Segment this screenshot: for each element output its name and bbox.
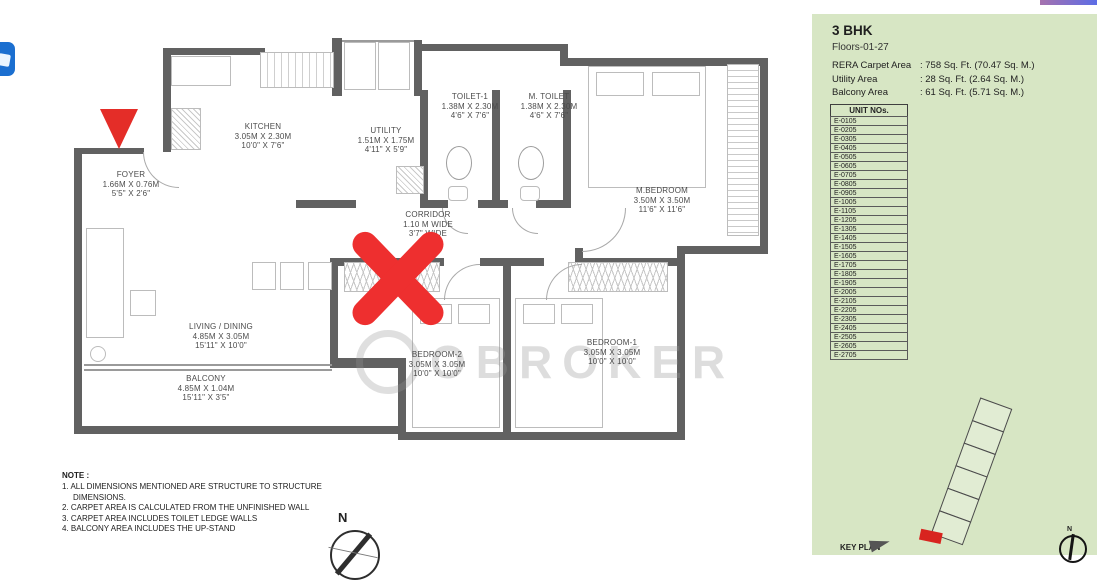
wall-line xyxy=(84,364,332,366)
shaft-outline xyxy=(378,42,410,90)
element: 3.05M X 2.30M xyxy=(235,132,292,142)
blue-app-icon[interactable] xyxy=(0,42,15,76)
element: 4.85M X 1.04M xyxy=(178,384,235,394)
element: 4'6" X 7'6" xyxy=(521,111,578,121)
element: 15'11" X 3'5" xyxy=(178,393,235,403)
element: BEDROOM-2 xyxy=(409,350,466,360)
pillow-outline xyxy=(652,72,700,96)
plant-outline xyxy=(90,346,106,362)
room-label-kitchen: KITCHEN3.05M X 2.30M10'0" X 7'6" xyxy=(235,122,292,151)
area-row: Utility Area : 28 Sq. Ft. (2.64 Sq. M.) xyxy=(832,73,1035,87)
wall-segment xyxy=(478,200,508,208)
unit-table: UNIT NOs. E-0105E-0205E-0305E-0405E-0505… xyxy=(830,104,908,360)
element: BEDROOM-1 xyxy=(584,338,641,348)
notes: NOTE : 1. ALL DIMENSIONS MENTIONED ARE S… xyxy=(62,471,342,534)
wall-segment xyxy=(760,58,768,254)
area-value: : 758 Sq. Ft. (70.47 Sq. M.) xyxy=(920,59,1035,73)
element: 1.66M X 0.76M xyxy=(103,180,160,190)
element: 3.05M X 3.05M xyxy=(584,348,641,358)
wall-segment xyxy=(420,200,448,208)
unit-type-title: 3 BHK xyxy=(832,23,873,38)
room-label-living-dining: LIVING / DINING4.85M X 3.05M15'11" X 10'… xyxy=(189,322,253,351)
notes-heading: NOTE : xyxy=(62,471,342,481)
element: CORRIDOR xyxy=(403,210,453,220)
dining-chair xyxy=(280,262,304,290)
element: 10'0" X 7'6" xyxy=(235,141,292,151)
unit-number-cell: E-2705 xyxy=(830,350,908,360)
wall-segment xyxy=(536,200,571,208)
north-label: N xyxy=(338,510,347,525)
room-label-utility: UTILITY1.51M X 1.75M4'11" X 5'9" xyxy=(358,126,415,155)
area-label: Balcony Area xyxy=(832,86,920,100)
element: 1.38M X 2.30M xyxy=(442,102,499,112)
coffee-table xyxy=(130,290,156,316)
note-item: 2. CARPET AREA IS CALCULATED FROM THE UN… xyxy=(62,503,342,513)
watermark-text: OBROKER xyxy=(430,335,735,389)
floors-label: Floors-01-27 xyxy=(832,42,889,53)
panel-north-compass: N xyxy=(1057,526,1087,566)
unit-table-body: E-0105E-0205E-0305E-0405E-0505E-0605E-07… xyxy=(830,116,908,360)
room-label-foyer: FOYER1.66M X 0.76M5'5" X 2'6" xyxy=(103,170,160,199)
room-label-mbedroom: M.BEDROOM3.50M X 3.50M11'6" X 11'6" xyxy=(634,186,691,215)
toilet-fixture xyxy=(518,146,544,180)
wall-segment xyxy=(422,44,568,51)
red-triangle-marker xyxy=(100,109,138,149)
area-row: RERA Carpet Area : 758 Sq. Ft. (70.47 Sq… xyxy=(832,59,1035,73)
wall-segment xyxy=(480,258,544,266)
element: 4'11" X 5'9" xyxy=(358,145,415,155)
door-swing-arc xyxy=(546,264,582,300)
element: 10'0" X 10'0" xyxy=(409,369,466,379)
note-item: 1. ALL DIMENSIONS MENTIONED ARE STRUCTUR… xyxy=(62,482,342,503)
element: TOILET-1 xyxy=(442,92,499,102)
room-label-mtoilet: M. TOILET1.38M X 2.30M4'6" X 7'6" xyxy=(521,92,578,121)
element: 4'6" X 7'6" xyxy=(442,111,499,121)
element: BALCONY xyxy=(178,374,235,384)
pillow-outline xyxy=(596,72,644,96)
element: 10'0" X 10'0" xyxy=(584,357,641,367)
door-swing-arc xyxy=(582,208,626,252)
north-compass: N xyxy=(316,510,386,570)
element: FOYER xyxy=(103,170,160,180)
kitchen-counter xyxy=(171,56,231,86)
shaft-outline xyxy=(344,42,376,90)
washbasin xyxy=(520,186,540,201)
closet-outline xyxy=(260,52,334,88)
sofa-outline xyxy=(86,228,124,338)
wall-segment xyxy=(163,48,265,55)
kitchen-platform xyxy=(171,108,201,150)
area-value: : 28 Sq. Ft. (2.64 Sq. M.) xyxy=(920,73,1024,87)
element: M. TOILET xyxy=(521,92,578,102)
wall-segment xyxy=(677,246,768,254)
wall-segment xyxy=(296,200,356,208)
north-label: N xyxy=(1067,526,1072,533)
door-swing-arc xyxy=(512,208,538,234)
room-label-bedroom2: BEDROOM-23.05M X 3.05M10'0" X 10'0" xyxy=(409,350,466,379)
dining-chair xyxy=(252,262,276,290)
area-row: Balcony Area : 61 Sq. Ft. (5.71 Sq. M.) xyxy=(832,86,1035,100)
element: UTILITY xyxy=(358,126,415,136)
wall-segment xyxy=(414,40,422,96)
wall-segment xyxy=(398,432,685,440)
wall-line xyxy=(84,369,332,371)
wall-segment xyxy=(74,426,406,434)
element: 15'11" X 10'0" xyxy=(189,341,253,351)
dining-chair xyxy=(308,262,332,290)
element: 1.38M X 2.30M xyxy=(521,102,578,112)
red-cross-mark xyxy=(342,226,454,330)
pillow-outline xyxy=(561,304,593,324)
wall-segment xyxy=(163,48,171,152)
element: 3.05M X 3.05M xyxy=(409,360,466,370)
room-label-balcony: BALCONY4.85M X 1.04M15'11" X 3'5" xyxy=(178,374,235,403)
pillow-outline xyxy=(458,304,490,324)
element: LIVING / DINING xyxy=(189,322,253,332)
page: { "colors": { "panel_green": "#d7e6c4", … xyxy=(0,0,1097,555)
note-item: 3. CARPET AREA INCLUDES TOILET LEDGE WAL… xyxy=(62,514,342,524)
area-label: Utility Area xyxy=(832,73,920,87)
key-plan-building xyxy=(928,398,1012,552)
top-gradient-strip xyxy=(1040,0,1097,5)
room-label-bedroom1: BEDROOM-13.05M X 3.05M10'0" X 10'0" xyxy=(584,338,641,367)
wardrobe-hatch xyxy=(727,64,759,236)
washbasin xyxy=(448,186,468,201)
note-item: 4. BALCONY AREA INCLUDES THE UP-STAND xyxy=(62,524,342,534)
element: 1.51M X 1.75M xyxy=(358,136,415,146)
element: 4.85M X 3.05M xyxy=(189,332,253,342)
element: 11'6" X 11'6" xyxy=(634,205,691,215)
element: 5'5" X 2'6" xyxy=(103,189,160,199)
area-value: : 61 Sq. Ft. (5.71 Sq. M.) xyxy=(920,86,1024,100)
app-icon-glyph xyxy=(0,53,11,67)
element: 3.50M X 3.50M xyxy=(634,196,691,206)
floor-plan: OBROKER FOYER1.66M X 0.76M5'5" X 2'6" KI… xyxy=(0,0,812,555)
wardrobe-hatch xyxy=(568,262,668,292)
room-label-toilet1: TOILET-11.38M X 2.30M4'6" X 7'6" xyxy=(442,92,499,121)
area-label: RERA Carpet Area xyxy=(832,59,920,73)
toilet-fixture xyxy=(446,146,472,180)
key-plan-arrow-icon xyxy=(869,536,891,553)
notes-list: 1. ALL DIMENSIONS MENTIONED ARE STRUCTUR… xyxy=(62,482,342,534)
element: M.BEDROOM xyxy=(634,186,691,196)
element: KITCHEN xyxy=(235,122,292,132)
pillow-outline xyxy=(523,304,555,324)
area-table: RERA Carpet Area : 758 Sq. Ft. (70.47 Sq… xyxy=(832,59,1035,100)
key-plan xyxy=(897,395,1017,555)
utility-fixture xyxy=(396,166,424,194)
wall-segment xyxy=(74,148,82,434)
info-panel: 3 BHK Floors-01-27 RERA Carpet Area : 75… xyxy=(812,14,1097,555)
